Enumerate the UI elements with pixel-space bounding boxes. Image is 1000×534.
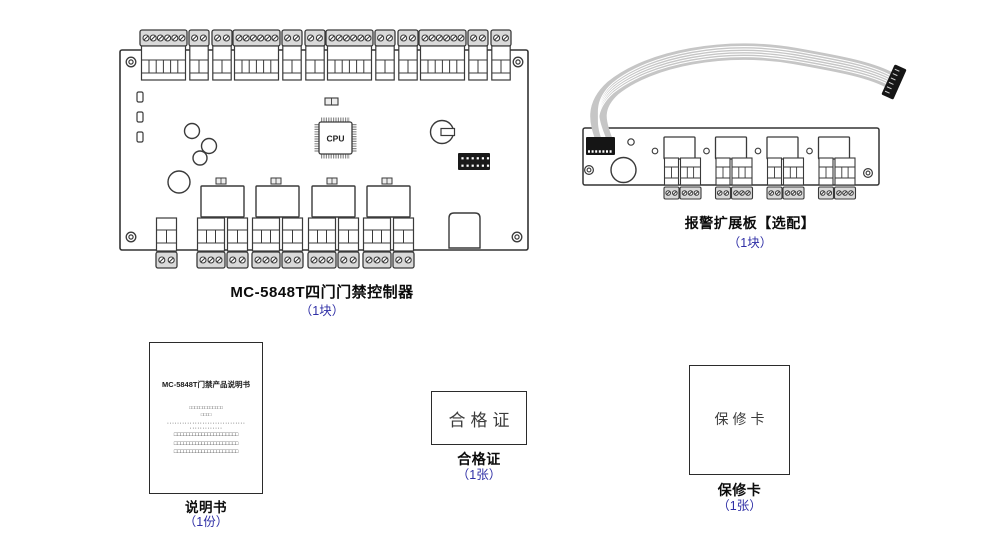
- expansion-pcb: [583, 128, 879, 199]
- controller-qty: （1块）: [132, 300, 512, 319]
- manual-page: MC-5848T门禁产品说明书 □□□□□□□□□□□□□ □□□□ ·····…: [149, 342, 263, 494]
- manual-placeholder-line: □□□□□□□□□□□□□□□□□□□□□: [150, 433, 262, 439]
- package-contents-diagram: CPU: [0, 0, 1000, 534]
- controller-board-diagram: CPU: [112, 24, 532, 286]
- certificate-qty: （1张）: [429, 464, 529, 483]
- pin-header: [458, 153, 490, 170]
- cpu-chip: CPU: [317, 120, 355, 157]
- power-connector: [449, 213, 480, 248]
- expansion-buzzer: [611, 158, 636, 183]
- jumper-header: [325, 98, 338, 105]
- warranty-card-text: 保修卡: [711, 409, 769, 429]
- manual-placeholder-line: □□□□□□□□□□□□□□□□□□□□□: [150, 450, 262, 456]
- warranty-qty: （1张）: [689, 495, 790, 514]
- certificate-card-text: 合格证: [444, 406, 515, 431]
- expansion-qty: （1块）: [650, 232, 850, 251]
- manual-placeholder-line: □□□□: [150, 412, 262, 418]
- manual-cover-title: MC-5848T门禁产品说明书: [150, 380, 262, 389]
- certificate-card: 合格证: [431, 391, 527, 445]
- idc-connector: [586, 137, 615, 155]
- manual-placeholder-line: □□□□□□□□□□□□□□□□□□□□□: [150, 442, 262, 448]
- status-leds: [137, 92, 143, 142]
- manual-placeholder-line: □□□□□□□□□□□□□: [150, 405, 262, 411]
- expansion-board-diagram: [575, 18, 915, 208]
- buzzer: [431, 121, 455, 144]
- expansion-caption: 报警扩展板【选配】: [650, 213, 850, 233]
- warranty-card: 保修卡: [689, 365, 790, 475]
- controller-caption: MC-5848T四门门禁控制器: [132, 281, 512, 302]
- cpu-label: CPU: [327, 134, 345, 144]
- manual-qty: （1份）: [146, 511, 266, 530]
